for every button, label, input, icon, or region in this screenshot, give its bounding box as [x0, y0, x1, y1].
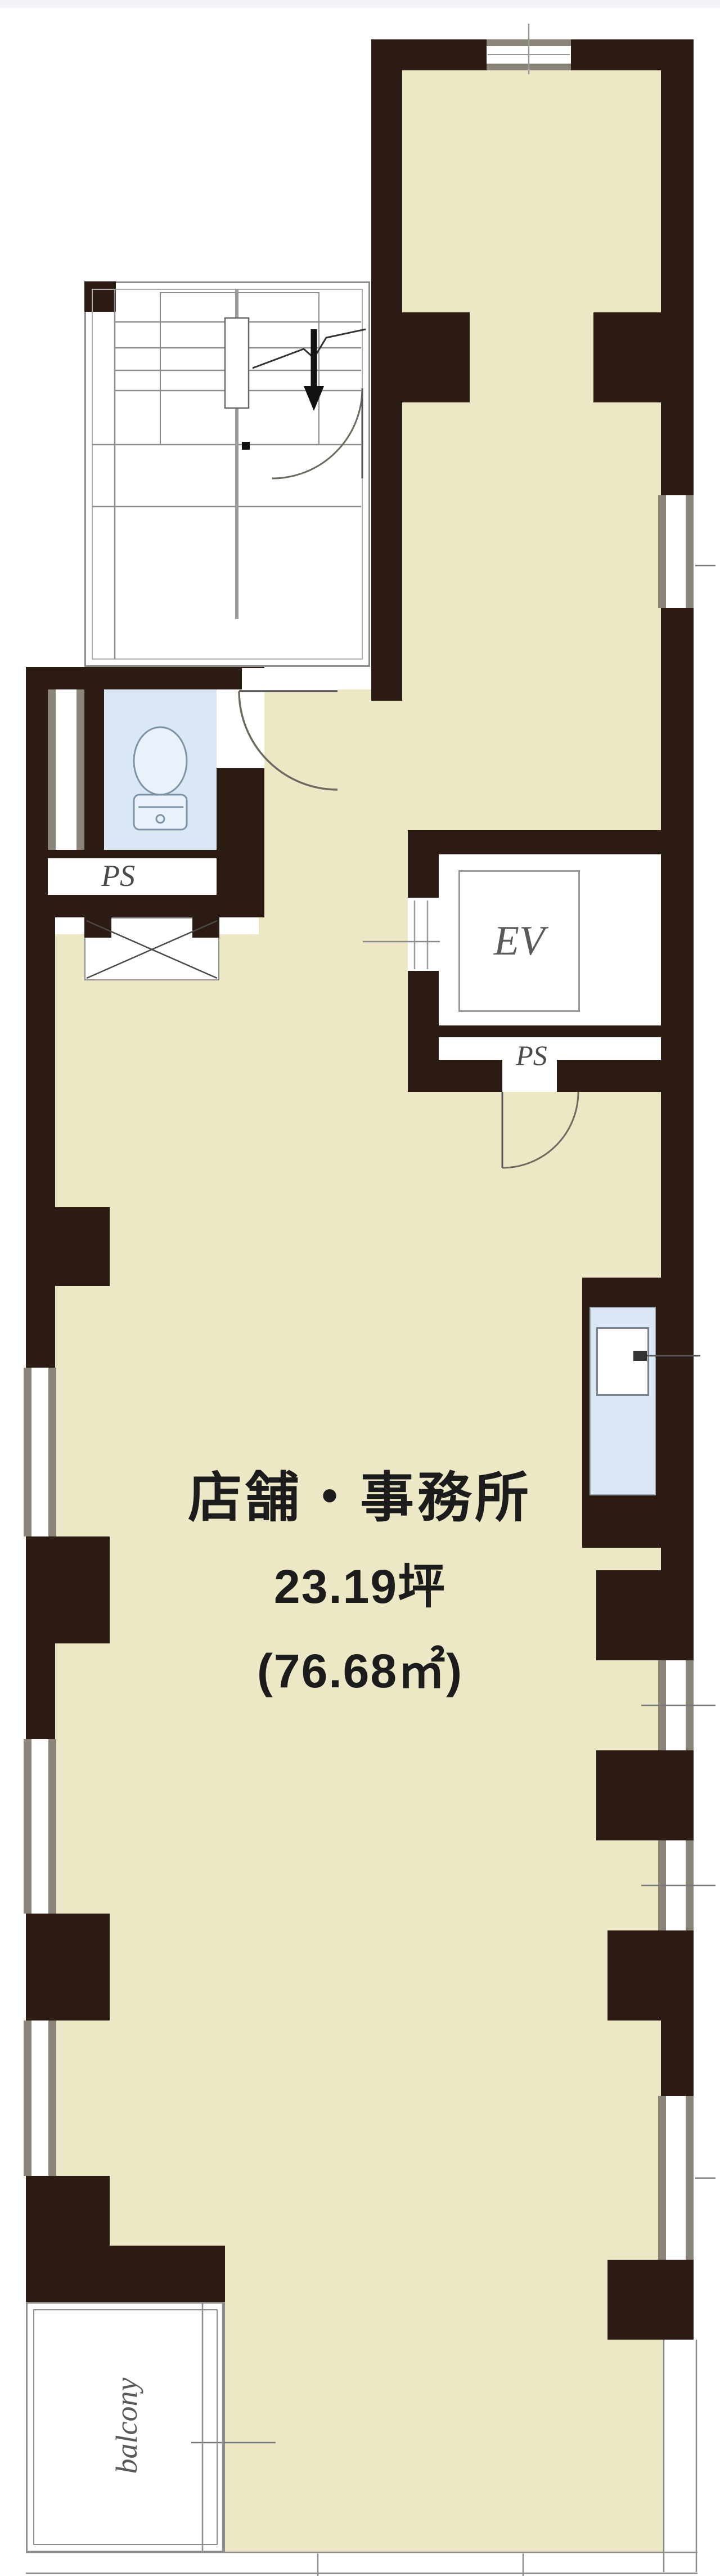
wall-balcony-arm — [110, 2246, 225, 2302]
toilet-doorway — [217, 689, 264, 768]
window-right-1 — [658, 1660, 694, 1750]
area-tsubo-label: 23.19坪 — [79, 1552, 641, 1614]
wall-left-b — [26, 1286, 55, 1368]
window-right-upper — [658, 495, 694, 608]
elevator-door-opening — [408, 898, 439, 971]
wall-right-upper — [661, 39, 694, 495]
entry-door-opening — [242, 668, 337, 691]
window-left-3 — [24, 2021, 56, 2176]
pipe-space-elevator-label: PS — [475, 1037, 588, 1073]
stairwell — [84, 281, 370, 667]
pier-right-2 — [596, 1750, 694, 1840]
floor-plan: 店舗・事務所 23.19坪 (76.68㎡) EV PS PS balcony — [0, 0, 720, 2576]
pier-upper-left — [371, 312, 470, 402]
sink-basin — [596, 1327, 649, 1396]
pipe-space-toilet-label: PS — [62, 855, 174, 896]
elevator-label: EV — [458, 870, 580, 1012]
window-left-1 — [24, 1368, 56, 1536]
pier-left-a — [26, 1207, 110, 1286]
window-top — [487, 39, 571, 70]
screenshot-top-edge — [0, 0, 720, 8]
pier-left-c — [26, 1914, 110, 2021]
pier-right-3 — [607, 1930, 661, 2021]
wall-left-c — [26, 1643, 55, 1739]
folding-door-stub-right — [192, 917, 219, 938]
room-type-label: 店舗・事務所 — [79, 1459, 641, 1526]
toilet-room — [104, 689, 217, 850]
area-sqm-label: (76.68㎡) — [79, 1636, 641, 1698]
balcony-label: balcony — [110, 2330, 143, 2521]
wall-right-lower — [661, 1930, 694, 2096]
window-right-2 — [658, 1840, 694, 1930]
window-toilet — [48, 689, 84, 850]
wall-balcony-corner — [26, 2176, 110, 2302]
wall-right-mid — [661, 608, 694, 1570]
main-room-upper — [402, 56, 661, 934]
wall-left-a — [26, 917, 55, 1207]
window-left-2 — [24, 1739, 56, 1914]
folding-door-stub-left — [84, 917, 111, 938]
main-room-entry — [259, 689, 402, 934]
stair-corner-post — [84, 281, 116, 312]
pier-right-4 — [607, 2260, 694, 2340]
window-right-3 — [658, 2096, 694, 2260]
